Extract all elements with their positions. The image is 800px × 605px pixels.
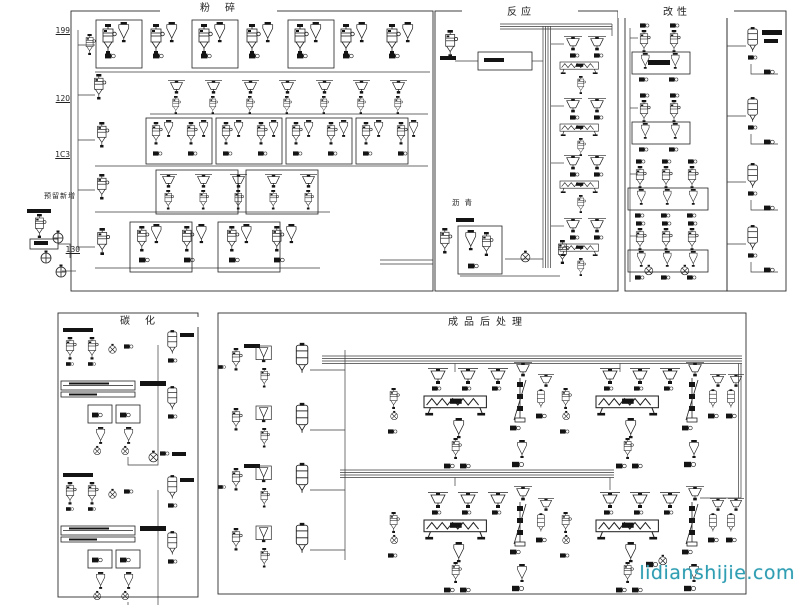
motor-icon: [460, 588, 470, 593]
line-tag-120: 120: [42, 95, 70, 103]
column-unit-icon: [327, 122, 337, 145]
blower-icon: [94, 591, 101, 600]
motor-icon: [560, 553, 569, 557]
blower-icon: [122, 591, 129, 600]
cyclone-box-icon: [256, 346, 271, 362]
motor-icon: [168, 559, 177, 563]
column-unit-icon: [640, 100, 650, 123]
tag-chip: [440, 56, 456, 60]
motor-icon: [153, 54, 163, 59]
equipment-enclosure: [356, 118, 408, 164]
column-unit-icon: [200, 190, 209, 210]
hopper-icon: [588, 218, 606, 232]
tag-chip: [484, 58, 504, 62]
hopper-icon: [488, 369, 508, 385]
column-unit-icon: [98, 122, 109, 148]
cyclone-icon: [263, 22, 273, 42]
motor-icon: [105, 54, 115, 59]
cyclone-icon: [689, 251, 697, 267]
column-unit-icon: [187, 122, 197, 145]
cyclone-icon: [454, 542, 464, 562]
hopper-icon: [300, 174, 317, 187]
column-unit-icon: [358, 96, 366, 114]
hopper-icon: [488, 493, 508, 509]
cyclone-icon: [626, 418, 636, 438]
section-title-carbonization: 碳化: [75, 317, 202, 327]
motor-icon: [328, 151, 337, 155]
column-unit-icon: [138, 226, 149, 252]
vibrating-screen-icon: [596, 520, 658, 540]
motor-icon: [66, 362, 74, 366]
column-unit-icon: [397, 122, 407, 145]
motor-icon: [632, 464, 642, 469]
cyclone-icon: [152, 224, 161, 243]
tag-chip: [172, 452, 186, 456]
tag-chip: [34, 241, 48, 245]
motor-icon: [764, 140, 774, 145]
motor-icon: [168, 414, 177, 418]
equipment-enclosure: [458, 226, 502, 274]
cyclone-icon: [637, 189, 645, 205]
motor-icon: [708, 414, 718, 419]
column-unit-icon: [270, 190, 279, 210]
motor-icon: [708, 538, 718, 543]
blower-icon: [122, 446, 129, 455]
column-unit-icon: [441, 228, 452, 254]
column-unit-icon: [640, 30, 650, 53]
hopper-icon: [600, 369, 620, 385]
bucket-elevator-icon: [514, 502, 526, 546]
column-unit-icon: [624, 562, 633, 583]
cyclone-icon: [287, 224, 296, 243]
column-unit-icon: [295, 24, 308, 54]
tank-icon: [748, 225, 758, 250]
hopper-icon: [728, 498, 744, 510]
hopper-icon: [458, 369, 478, 385]
column-unit-icon: [341, 24, 354, 54]
column-unit-icon: [624, 438, 633, 459]
tag-chip: [140, 526, 166, 531]
hopper-icon: [242, 80, 259, 93]
tank-icon: [537, 389, 544, 407]
motor-icon: [510, 426, 520, 431]
column-unit-icon: [688, 166, 698, 189]
motor-icon: [560, 429, 569, 433]
hopper-icon: [588, 155, 606, 169]
motor-icon: [120, 413, 130, 418]
motor-icon: [570, 115, 579, 119]
cyclone-icon: [165, 120, 173, 137]
motor-icon: [168, 358, 177, 362]
cyclone-icon: [215, 22, 225, 42]
cyclone-icon: [357, 22, 367, 42]
column-unit-icon: [98, 228, 110, 255]
tank-icon: [168, 475, 177, 498]
blower-icon: [109, 489, 117, 498]
hopper-icon: [316, 80, 333, 93]
blower-icon: [391, 411, 398, 420]
motor-icon: [764, 70, 774, 75]
motor-icon: [223, 151, 232, 155]
column-unit-icon: [321, 96, 329, 114]
panel-reaction-border: [435, 11, 618, 291]
motor-icon: [168, 503, 177, 507]
cad-drawing-sheet: 粉碎 反应 改性 碳化 成品后处理 199 120 1C3 预留新增 130 沥…: [0, 0, 800, 605]
column-unit-icon: [222, 122, 232, 145]
cyclone-box-icon: [256, 526, 271, 542]
motor-icon: [510, 550, 520, 555]
cyclone-icon: [197, 224, 206, 243]
blower-icon: [563, 411, 570, 420]
motor-icon: [536, 538, 546, 543]
reserved-expansion-label: 预留新增: [44, 193, 80, 200]
motor-icon: [249, 54, 259, 59]
section-title-modification: 改性: [618, 8, 734, 18]
motor-icon: [635, 213, 644, 217]
motor-icon: [684, 586, 696, 591]
motor-icon: [682, 426, 692, 431]
tag-chip: [63, 328, 93, 332]
column-unit-icon: [232, 528, 242, 551]
motor-icon: [444, 464, 454, 469]
column-unit-icon: [662, 166, 672, 189]
tank-icon: [168, 386, 177, 409]
motor-icon: [92, 558, 102, 563]
hopper-icon: [168, 80, 185, 93]
column-unit-icon: [152, 122, 162, 145]
motor-icon: [726, 538, 736, 543]
column-unit-icon: [452, 562, 461, 583]
column-unit-icon: [452, 438, 461, 459]
pump-icon: [41, 251, 51, 264]
equipment-enclosure: [116, 405, 140, 423]
motor-icon: [293, 151, 302, 155]
column-unit-icon: [98, 174, 109, 200]
motor-icon: [492, 510, 501, 514]
motor-icon: [218, 365, 226, 369]
motor-icon: [764, 268, 774, 273]
hopper-icon: [230, 174, 247, 187]
vibrating-screen-icon: [424, 396, 486, 416]
cyclone-icon: [311, 22, 321, 42]
motor-icon: [512, 462, 524, 467]
hopper-icon: [538, 498, 554, 510]
cyclone-icon: [97, 572, 105, 589]
blower-icon: [149, 451, 158, 462]
column-unit-icon: [210, 96, 218, 114]
motor-icon: [88, 362, 96, 366]
motor-icon: [160, 451, 169, 455]
panel-right-column-border: [727, 11, 786, 291]
motor-icon: [687, 275, 696, 279]
cyclone-icon: [119, 22, 129, 42]
vibrating-screen-icon: [560, 181, 598, 193]
hopper-icon: [660, 369, 680, 385]
motor-icon: [748, 191, 757, 195]
motor-icon: [594, 235, 603, 239]
cyclone-icon: [270, 120, 278, 137]
equipment-enclosure: [88, 405, 112, 423]
column-unit-icon: [66, 482, 76, 505]
section-title-crushing: 粉碎: [160, 4, 277, 14]
motor-icon: [92, 413, 102, 418]
column-unit-icon: [446, 30, 458, 57]
cyclone-box-icon: [256, 406, 271, 422]
column-unit-icon: [247, 24, 260, 54]
column-unit-icon: [261, 548, 270, 568]
motor-icon: [670, 23, 679, 27]
hopper-icon: [195, 174, 212, 187]
cyclone-icon: [663, 189, 671, 205]
blower-icon: [563, 535, 570, 544]
motor-icon: [594, 172, 603, 176]
tag-chip: [180, 333, 194, 337]
panel-post-processing-border: [218, 313, 746, 594]
cyclone-icon: [403, 22, 413, 42]
motor-icon: [468, 264, 478, 269]
cyclone-icon: [200, 120, 208, 137]
hopper-icon: [160, 174, 177, 187]
cyclone-icon: [518, 564, 527, 582]
motor-icon: [66, 507, 74, 511]
tank-icon: [168, 330, 177, 353]
column-unit-icon: [88, 482, 98, 505]
motor-icon: [639, 77, 648, 81]
column-unit-icon: [670, 100, 680, 123]
hopper-icon: [728, 374, 744, 386]
rotary-furnace-icon: [61, 526, 135, 542]
cyclone-icon: [671, 53, 679, 69]
cyclone-icon: [626, 542, 636, 562]
hopper-icon: [458, 493, 478, 509]
blower-icon: [681, 265, 689, 275]
hopper-icon: [710, 498, 726, 510]
column-unit-icon: [362, 122, 372, 145]
column-unit-icon: [284, 96, 292, 114]
motor-icon: [153, 151, 162, 155]
column-unit-icon: [103, 24, 116, 54]
column-unit-icon: [273, 226, 284, 252]
cyclone-icon: [375, 120, 383, 137]
cyclone-icon: [97, 427, 105, 444]
cyclone-icon: [690, 440, 699, 458]
motor-icon: [669, 77, 678, 81]
column-unit-icon: [578, 258, 586, 276]
equipment-enclosure: [88, 550, 112, 568]
motor-icon: [388, 553, 397, 557]
motor-icon: [570, 53, 579, 57]
column-unit-icon: [305, 190, 314, 210]
motor-icon: [682, 550, 692, 555]
pipe-line: [128, 490, 158, 605]
tank-icon: [709, 513, 716, 531]
motor-icon: [636, 221, 645, 225]
section-title-post-processing: 成品后处理: [382, 318, 590, 328]
hopper-icon: [205, 80, 222, 93]
motor-icon: [462, 510, 471, 514]
motor-icon: [639, 147, 648, 151]
tag-chip: [456, 218, 474, 222]
column-unit-icon: [390, 512, 399, 533]
hopper-icon: [660, 493, 680, 509]
hopper-icon: [588, 98, 606, 112]
equipment-enclosure: [632, 122, 690, 144]
motor-icon: [748, 253, 757, 257]
vibrating-screen-icon: [596, 396, 658, 416]
motor-icon: [748, 125, 757, 129]
column-unit-icon: [165, 190, 174, 210]
cyclone-icon: [663, 251, 671, 267]
column-unit-icon: [261, 428, 270, 448]
column-unit-icon: [232, 408, 242, 431]
motor-icon: [604, 510, 613, 514]
column-unit-icon: [578, 138, 586, 156]
column-unit-icon: [235, 190, 244, 210]
motor-icon: [632, 588, 642, 593]
motor-icon: [343, 54, 353, 59]
hopper-icon: [265, 174, 282, 187]
motor-icon: [688, 159, 697, 163]
motor-icon: [662, 221, 671, 225]
tank-icon: [537, 513, 544, 531]
motor-icon: [188, 151, 197, 155]
cyclone-icon: [689, 189, 697, 205]
column-unit-icon: [562, 388, 571, 409]
tag-chip: [63, 473, 93, 477]
bucket-elevator-icon: [514, 378, 526, 422]
cyclone-icon: [235, 120, 243, 137]
motor-icon: [274, 258, 284, 263]
cyclone-icon: [410, 120, 418, 137]
cyclone-icon: [125, 427, 133, 444]
motor-icon: [604, 386, 613, 390]
column-unit-icon: [86, 34, 95, 55]
motor-icon: [634, 510, 643, 514]
motor-icon: [536, 414, 546, 419]
tag-chip: [180, 478, 194, 482]
tank-icon: [727, 389, 734, 407]
motor-icon: [460, 464, 470, 469]
blower-icon: [109, 344, 117, 353]
motor-icon: [297, 54, 307, 59]
tank-icon: [748, 27, 758, 52]
hopper-icon: [279, 80, 296, 93]
column-unit-icon: [688, 228, 698, 251]
cyclone-icon: [125, 572, 133, 589]
tag-chip: [762, 30, 782, 35]
motor-icon: [684, 462, 696, 467]
motor-icon: [669, 147, 678, 151]
column-unit-icon: [173, 96, 181, 114]
tag-chip: [764, 39, 778, 43]
line-tag-1c3: 1C3: [42, 151, 70, 159]
tag-chip: [140, 381, 166, 386]
hopper-icon: [710, 374, 726, 386]
motor-icon: [616, 464, 626, 469]
motor-icon: [570, 172, 579, 176]
hopper-icon: [514, 362, 532, 376]
column-unit-icon: [670, 30, 680, 53]
motor-icon: [635, 275, 644, 279]
cyclone-icon: [641, 123, 649, 139]
tank-icon: [296, 463, 308, 493]
column-unit-icon: [228, 226, 239, 252]
motor-icon: [640, 93, 649, 97]
tank-icon: [168, 531, 177, 554]
column-unit-icon: [387, 24, 400, 54]
hopper-icon: [630, 493, 650, 509]
cyclone-icon: [671, 123, 679, 139]
vibrating-screen-icon: [560, 62, 598, 74]
rotary-furnace-icon: [61, 381, 135, 397]
asphalt-label: 沥青: [452, 199, 486, 207]
motor-icon: [184, 258, 194, 263]
tag-chip: [27, 209, 51, 213]
column-unit-icon: [232, 348, 242, 371]
blower-icon: [94, 446, 101, 455]
bucket-elevator-icon: [686, 502, 698, 546]
column-unit-icon: [261, 488, 270, 508]
hopper-icon: [686, 362, 704, 376]
vibrating-screen-icon: [424, 520, 486, 540]
tank-icon: [296, 523, 308, 553]
motor-icon: [512, 586, 524, 591]
cyclone-icon: [340, 120, 348, 137]
blower-icon: [645, 265, 653, 275]
cyclone-icon: [641, 53, 649, 69]
hopper-icon: [514, 486, 532, 500]
column-unit-icon: [292, 122, 302, 145]
bucket-elevator-icon: [686, 378, 698, 422]
motor-icon: [640, 23, 649, 27]
hopper-icon: [564, 36, 582, 50]
column-unit-icon: [395, 96, 403, 114]
column-unit-icon: [390, 388, 399, 409]
watermark-text: lidianshijie.com: [639, 562, 795, 584]
motor-icon: [363, 151, 372, 155]
column-unit-icon: [247, 96, 255, 114]
motor-icon: [662, 159, 671, 163]
pump-icon: [53, 231, 63, 244]
motor-icon: [634, 386, 643, 390]
section-title-reaction: 反应: [462, 8, 578, 18]
cyclone-icon: [454, 418, 464, 438]
hopper-icon: [564, 98, 582, 112]
motor-icon: [688, 221, 697, 225]
column-unit-icon: [88, 337, 98, 360]
motor-icon: [664, 386, 673, 390]
motor-icon: [389, 54, 399, 59]
motor-icon: [201, 54, 211, 59]
cyclone-icon: [518, 440, 527, 458]
tank-icon: [709, 389, 716, 407]
column-unit-icon: [636, 228, 646, 251]
hopper-icon: [353, 80, 370, 93]
motor-icon: [432, 386, 441, 390]
tag-chip: [648, 60, 670, 65]
cyclone-icon: [305, 120, 313, 137]
hopper-icon: [588, 36, 606, 50]
column-unit-icon: [199, 24, 212, 54]
motor-icon: [661, 275, 670, 279]
column-unit-icon: [232, 468, 242, 491]
blower-icon: [391, 535, 398, 544]
line-tag-199: 199: [42, 27, 70, 35]
column-unit-icon: [578, 195, 586, 213]
hopper-icon: [428, 493, 448, 509]
motor-icon: [398, 151, 407, 155]
hopper-icon: [538, 374, 554, 386]
